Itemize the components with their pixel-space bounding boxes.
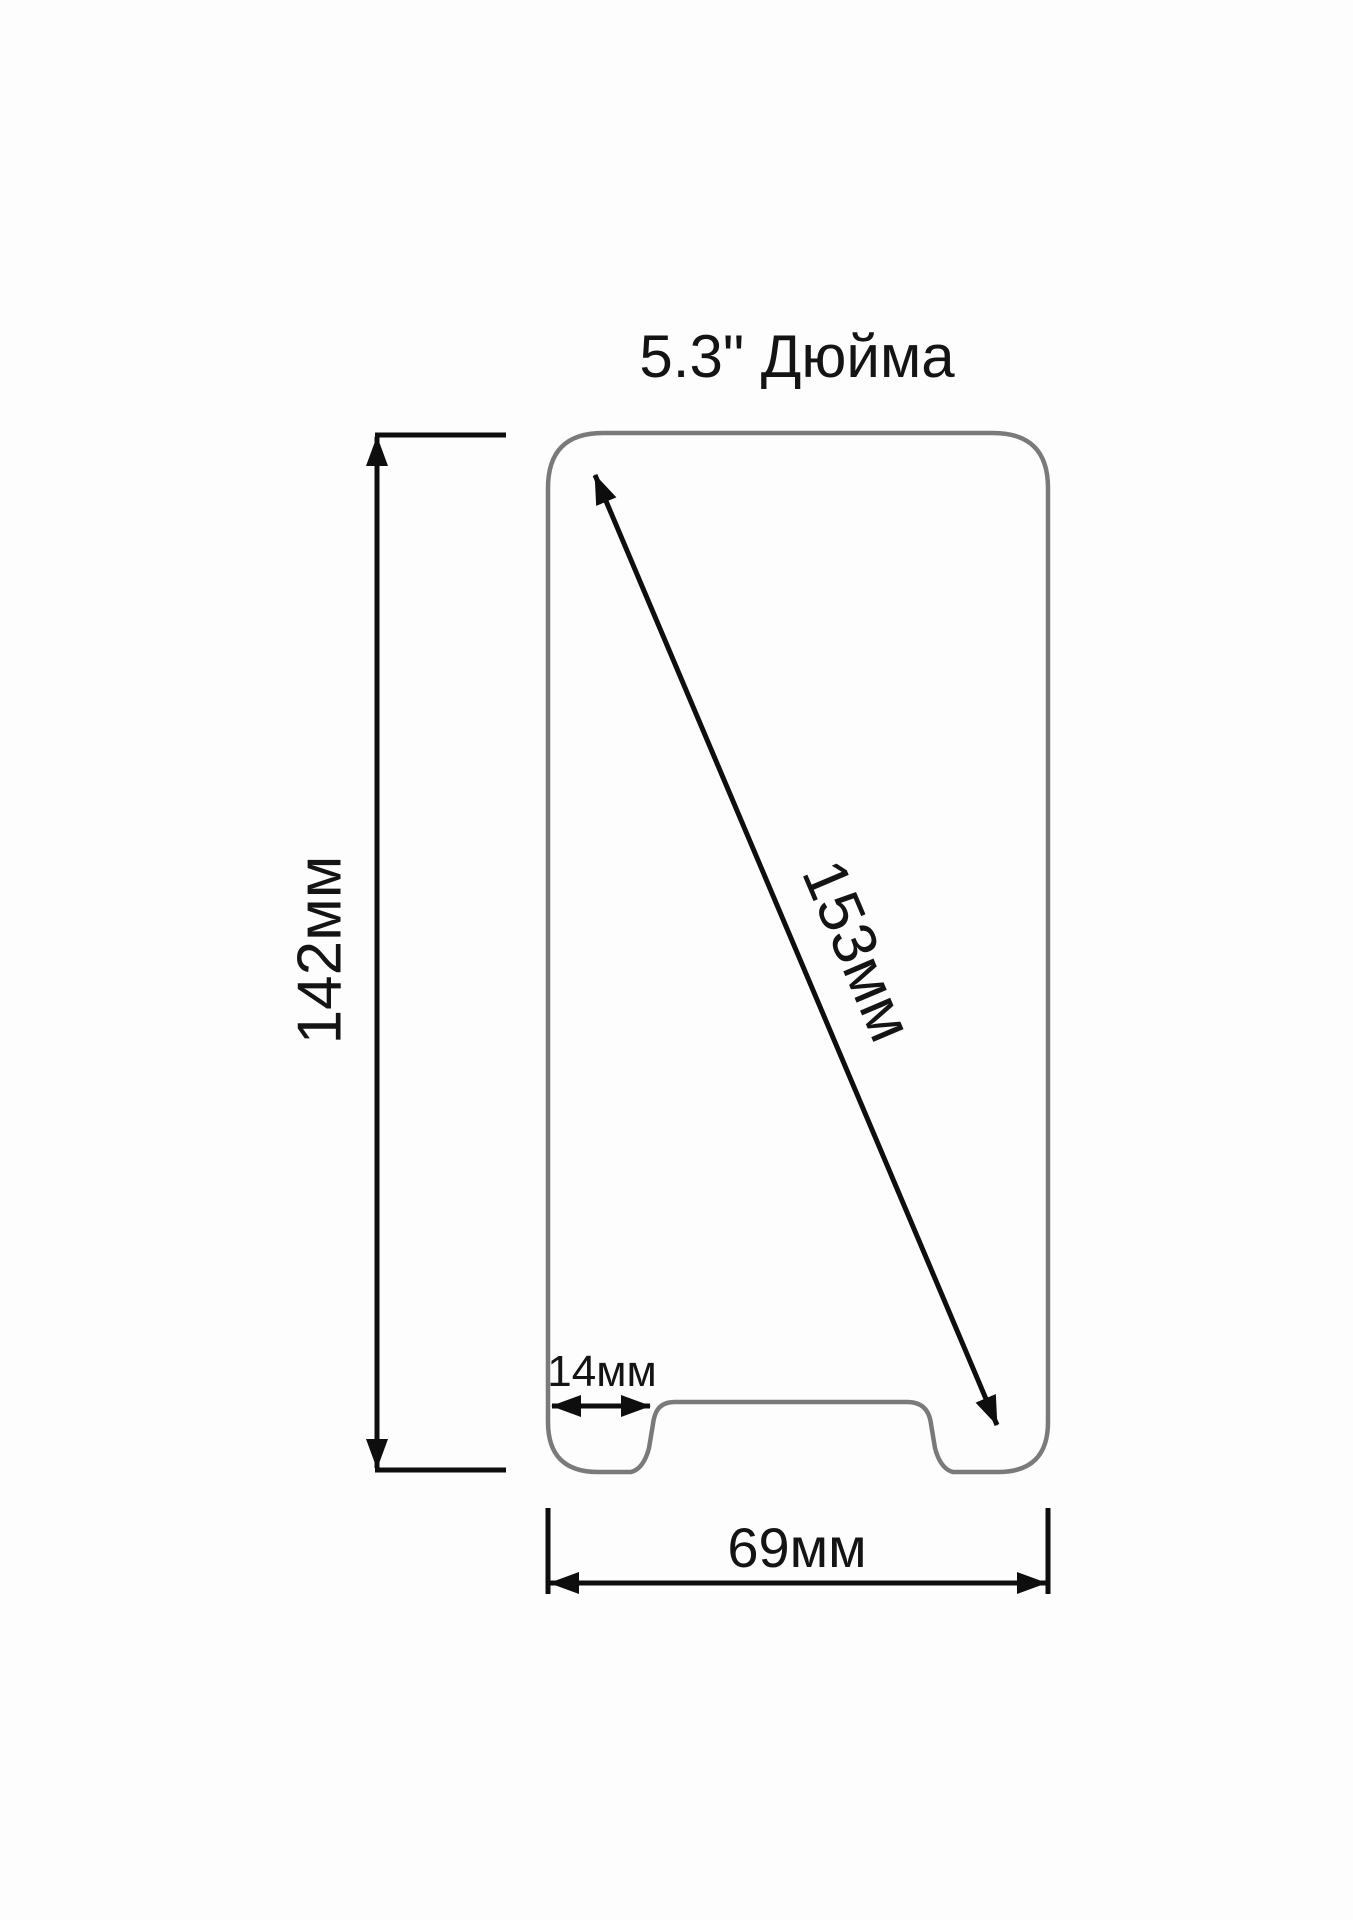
phone-dimension-diagram: 5.3" Дюйма 142мм 153мм 14мм 69мм bbox=[0, 0, 1353, 1920]
width-dimension-label: 69мм bbox=[727, 1516, 866, 1579]
notch-offset-label: 14мм bbox=[547, 1347, 656, 1396]
diagonal-dimension-label: 153мм bbox=[788, 851, 925, 1052]
diagonal-dimension-line bbox=[595, 475, 997, 1425]
page-title: 5.3" Дюйма bbox=[639, 323, 955, 390]
height-dimension-label: 142мм bbox=[286, 856, 355, 1045]
diagram-canvas: 5.3" Дюйма 142мм 153мм 14мм 69мм bbox=[0, 0, 1353, 1920]
